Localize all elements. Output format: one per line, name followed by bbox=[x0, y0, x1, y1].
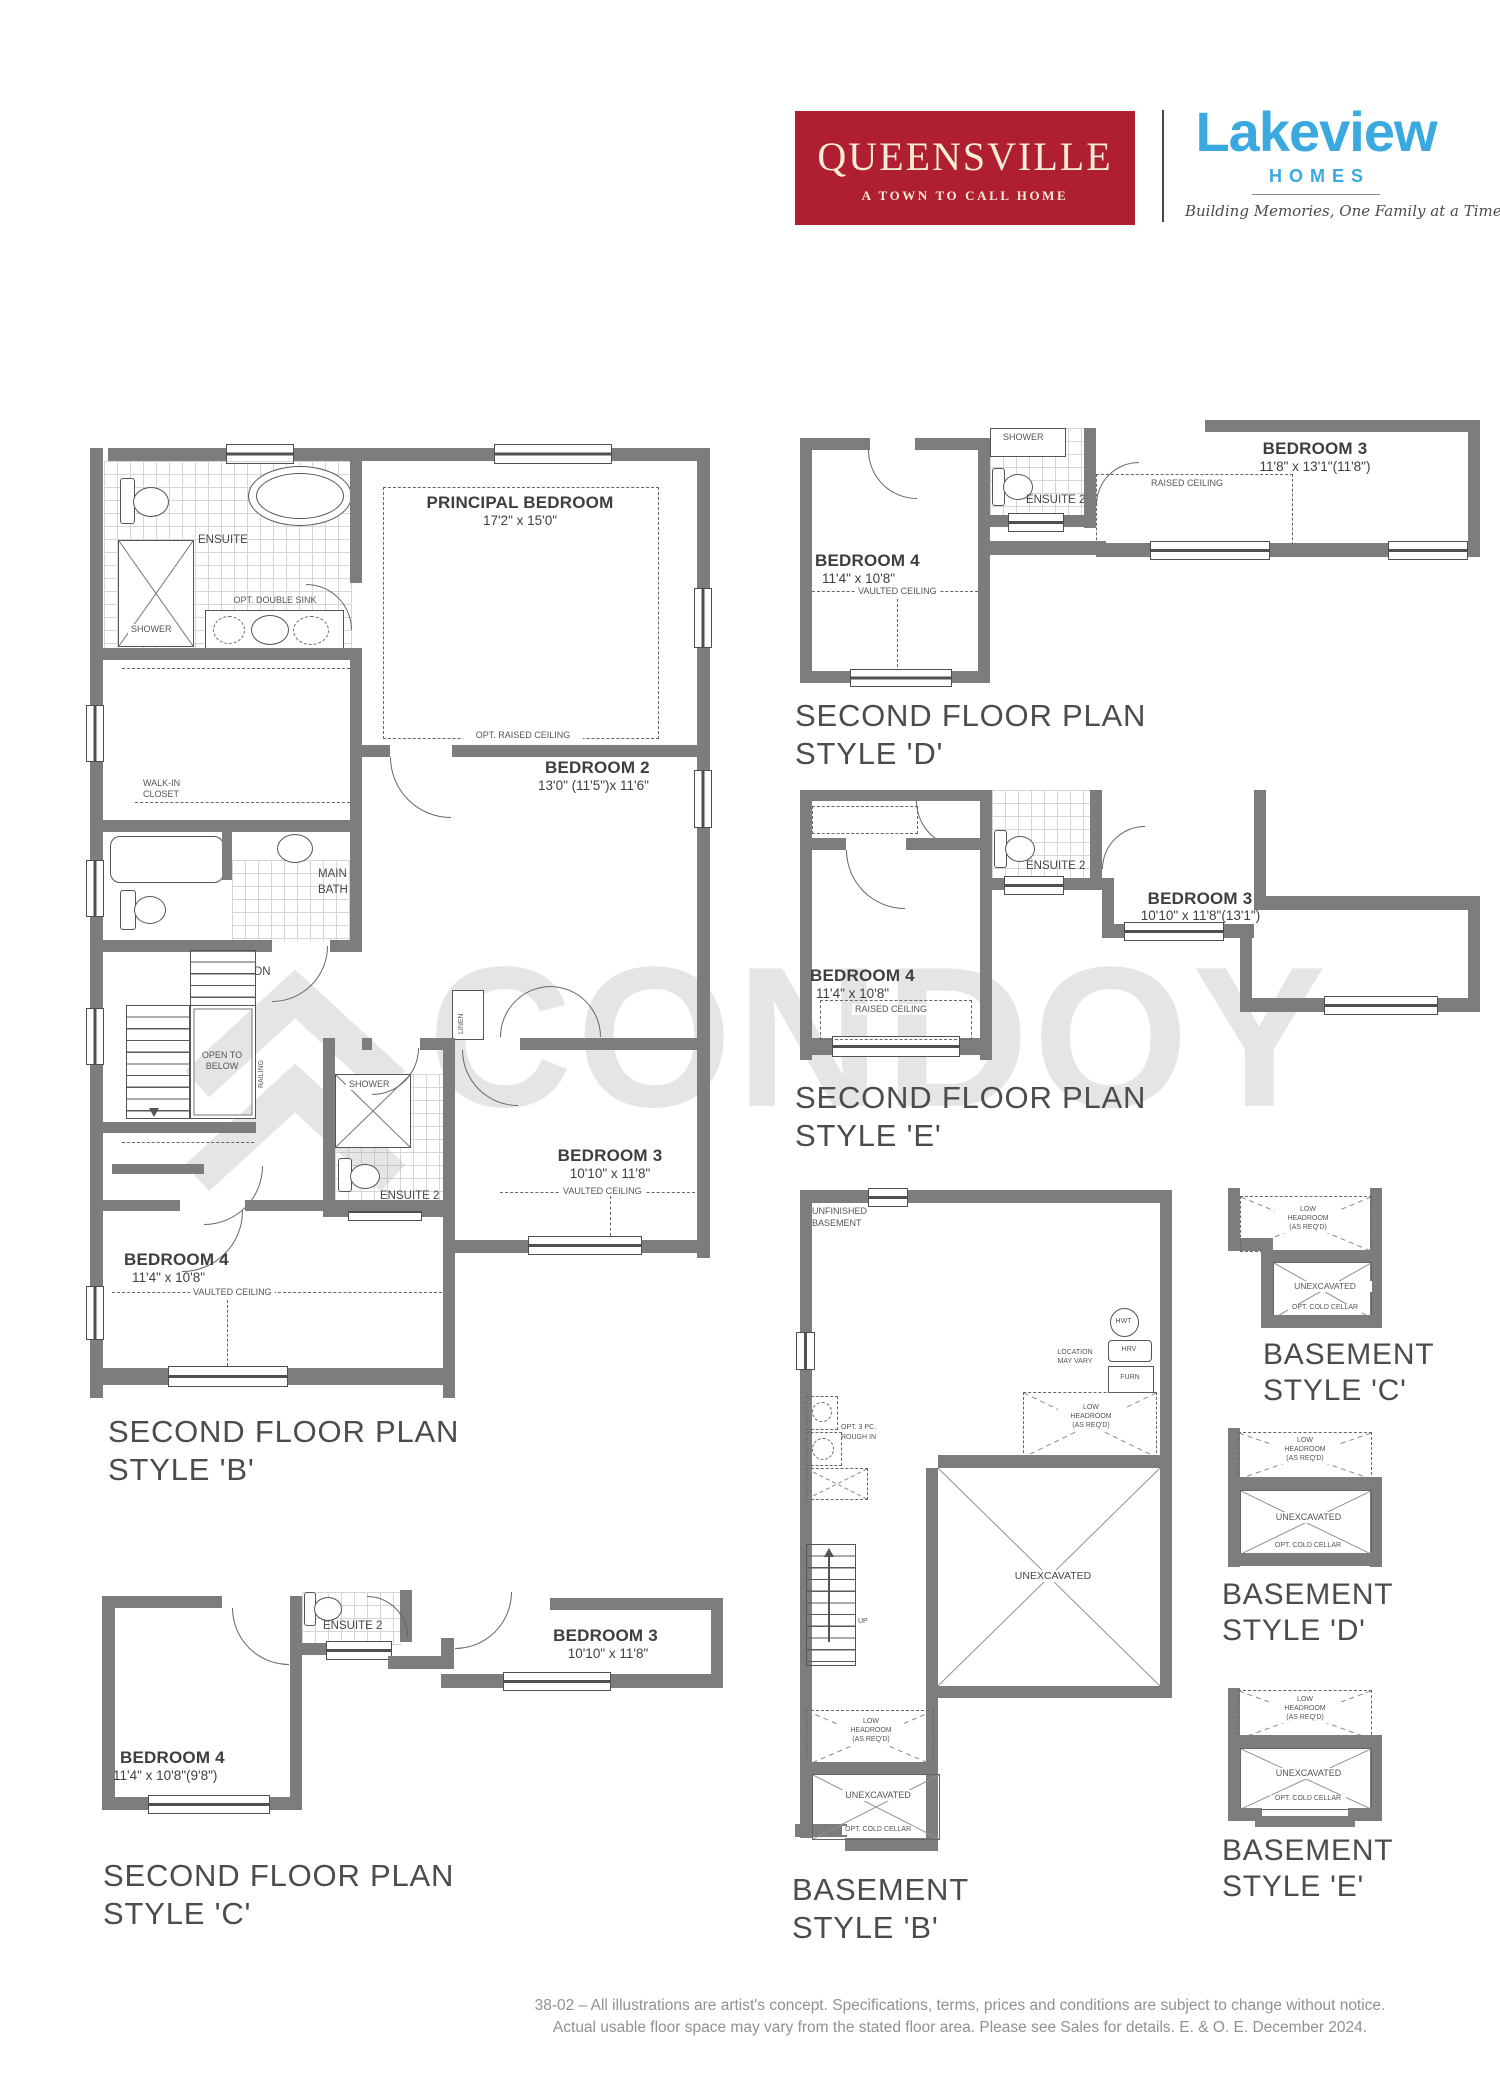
plan-title: BASEMENT bbox=[1222, 1834, 1393, 1868]
unexcavated-label: UNEXCAVATED bbox=[1258, 1768, 1359, 1779]
cold-cellar-label: OPT. COLD CELLAR bbox=[1270, 1795, 1346, 1804]
footer-disclaimer: 38-02 – All illustrations are artist's c… bbox=[470, 1995, 1450, 2039]
low-headroom-label: (AS REQ'D) bbox=[1272, 1714, 1338, 1723]
wall bbox=[1255, 1816, 1355, 1827]
low-headroom-label: LOW bbox=[1272, 1696, 1338, 1705]
footer-line-2: Actual usable floor space may vary from … bbox=[470, 2017, 1450, 2039]
low-headroom-label: HEADROOM bbox=[1272, 1705, 1338, 1714]
plan-style: STYLE 'E' bbox=[1222, 1870, 1364, 1904]
floor-plan-page: CONDOY QUEENSVILLE A TOWN TO CALL HOME L… bbox=[0, 0, 1500, 2100]
wall bbox=[1228, 1735, 1382, 1748]
basement-style-e: LOW HEADROOM (AS REQ'D) UNEXCAVATED OPT.… bbox=[0, 0, 1500, 2100]
footer-line-1: 38-02 – All illustrations are artist's c… bbox=[470, 1995, 1450, 2017]
